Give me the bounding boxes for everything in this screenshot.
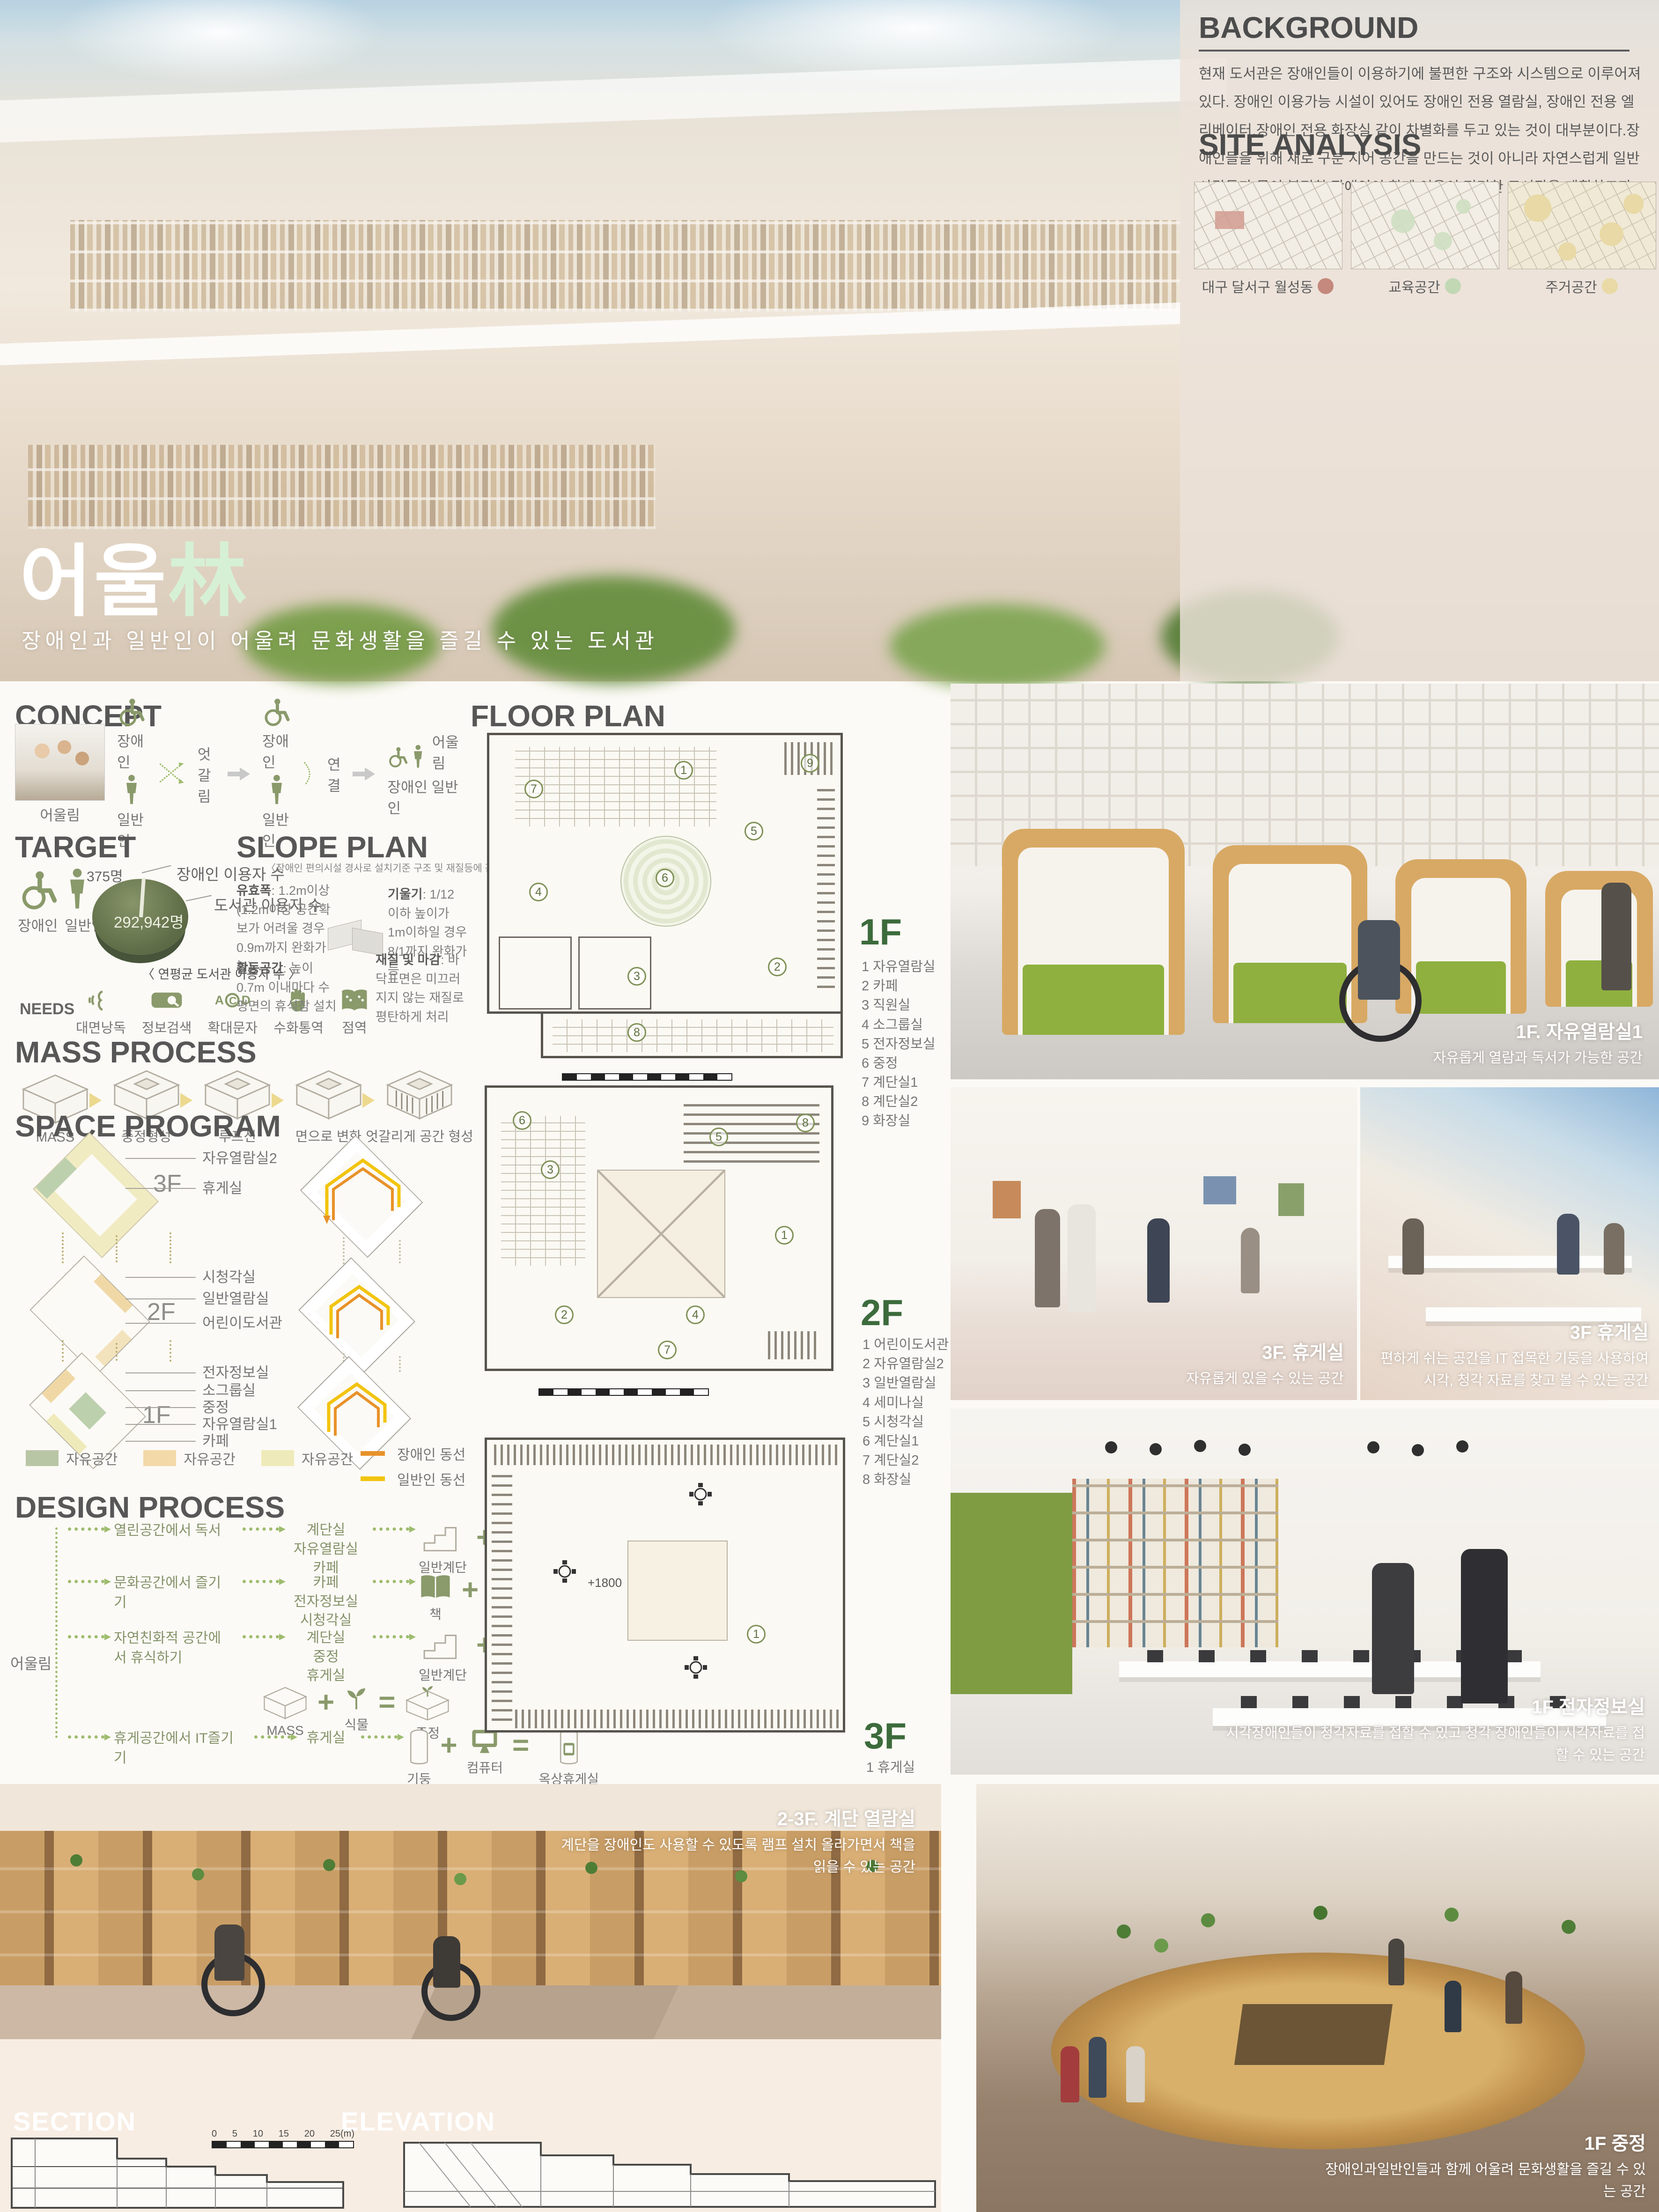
path-legend-item: 장애인 동선 bbox=[361, 1443, 465, 1464]
wheelchair-icon bbox=[262, 698, 291, 727]
room-number-badge: 1 bbox=[674, 761, 693, 780]
person-silhouette bbox=[1372, 1563, 1414, 1694]
legend-2f: 1 어린이도서관2 자유열람실23 일반열람실4 세미나실5 시청각실6 계단실… bbox=[863, 1335, 949, 1489]
legend-item: 9 화장실 bbox=[862, 1112, 936, 1131]
artwork bbox=[1203, 1176, 1236, 1204]
render-caption: 2-3F. 계단 열람실 계단을 장애인도 사용할 수 있도록 램프 설치 올라… bbox=[560, 1804, 915, 1878]
site-map-caption: 교육공간 bbox=[1351, 276, 1498, 296]
merge-label: 어울림 bbox=[432, 730, 460, 773]
legend-1f: 1 자유열람실2 카페3 직원실4 소그룹실5 전자정보실6 중정7 계단실18… bbox=[862, 958, 936, 1131]
site-map-caption: 대구 달서구 월성동 bbox=[1194, 276, 1342, 296]
person-silhouette bbox=[1089, 2037, 1106, 2098]
person-icon bbox=[269, 774, 285, 805]
wheelchair-icon bbox=[19, 870, 59, 910]
person-silhouette bbox=[1035, 1209, 1060, 1307]
legend-swatch bbox=[261, 1450, 294, 1466]
equation-b: 식물 bbox=[344, 1686, 369, 1733]
plus-icon: + bbox=[441, 1733, 457, 1759]
wheelchair-icon bbox=[387, 742, 409, 773]
plan-scale-bar bbox=[538, 1388, 709, 1396]
room-number-badge: 1 bbox=[747, 1625, 766, 1644]
courtyard-cube-icon bbox=[405, 1686, 450, 1720]
floor-tag-2f: 2F bbox=[147, 1298, 176, 1326]
ramp-drawing bbox=[328, 906, 384, 955]
room-number-badge: 5 bbox=[709, 1128, 728, 1146]
process-row-4: 휴게공간에서 IT즐기기 휴게실 기둥 + 컴퓨터 = 옥상휴게실 bbox=[68, 1729, 599, 1788]
legend-item: 1 휴게실 bbox=[866, 1758, 915, 1777]
merge-sub-label: 장애인 일반인 bbox=[387, 775, 460, 818]
plan-badges: 123456789 bbox=[487, 733, 843, 1061]
render-caption: 3F 휴게실 편하게 쉬는 공간을 IT 접목한 기둥을 사용하여 시각, 청각… bbox=[1368, 1317, 1649, 1392]
site-analysis-heading: SITE ANALYSIS bbox=[1199, 127, 1630, 167]
legend-item: 7 계단실2 bbox=[863, 1451, 949, 1470]
path-legend: 장애인 동선 일반인 동선 bbox=[361, 1443, 465, 1489]
room-label: 시청각실 bbox=[202, 1265, 256, 1286]
artwork bbox=[993, 1181, 1021, 1218]
info-panel: BACKGROUND 현재 도서관은 장애인들이 이용하기에 불편한 구조와 시… bbox=[1180, 0, 1659, 681]
spaces-list: 카페 전자정보실 시청각실 bbox=[288, 1573, 363, 1630]
dotted-arrow-icon bbox=[373, 1635, 409, 1638]
render-caption: 3F. 휴게실 자유롭게 있을 수 있는 공간 bbox=[1082, 1337, 1344, 1390]
person-silhouette bbox=[433, 1936, 460, 1988]
floor-plan-1f: 123456789 bbox=[487, 733, 843, 1061]
activity-label: 열린공간에서 독서 bbox=[114, 1521, 233, 1541]
title-hanja: 林 bbox=[168, 538, 249, 626]
bookshelf-band-lower bbox=[28, 445, 656, 529]
activity-label: 문화공간에서 즐기기 bbox=[114, 1573, 233, 1613]
cross-label: 엇갈림 bbox=[198, 743, 215, 806]
legend-dot-icon bbox=[1602, 278, 1618, 294]
site-map-cell: 교육공간 bbox=[1351, 182, 1498, 296]
site-map-thumbnail bbox=[1508, 182, 1656, 269]
axon-3f bbox=[34, 1134, 158, 1257]
leader-line bbox=[142, 865, 171, 873]
pie-small-value: 375명 bbox=[87, 865, 123, 885]
plan-badges: 12345678 bbox=[485, 1085, 833, 1376]
needs-item: 정보검색 bbox=[142, 987, 192, 1037]
legend-item: 6 중정 bbox=[862, 1054, 936, 1073]
render-digital-room: 1F 전자정보실 시각장애인들이 청각자료를 접할 수 있고 청각 장애인들이 … bbox=[951, 1408, 1659, 1775]
plant-icon bbox=[344, 1686, 369, 1712]
legend-item: 8 화장실 bbox=[863, 1470, 949, 1489]
person-silhouette bbox=[1061, 2046, 1079, 2102]
connect-arc-icon bbox=[303, 741, 315, 807]
face-reading-icon bbox=[88, 987, 114, 1013]
person-silhouette bbox=[1505, 1971, 1522, 2024]
hero-render: BACKGROUND 현재 도서관은 장애인들이 이용하기에 불편한 구조와 시… bbox=[0, 0, 1659, 681]
site-map-cell: 주거공간 bbox=[1508, 182, 1655, 296]
legend-3f: 1 휴게실 bbox=[866, 1758, 915, 1777]
floor-plan-3f: +1800 1 bbox=[485, 1438, 845, 1737]
room-number-badge: 1 bbox=[775, 1226, 794, 1245]
room-number-badge: 7 bbox=[658, 1341, 677, 1359]
legend-item: 2 자유열람실2 bbox=[863, 1355, 949, 1374]
dotted-arrow-icon bbox=[361, 1735, 398, 1739]
person-icon bbox=[124, 774, 140, 805]
site-map-thumbnail bbox=[1194, 182, 1342, 269]
room-number-badge: 6 bbox=[656, 869, 674, 887]
path-arrow-icon bbox=[361, 1451, 385, 1456]
person-silhouette bbox=[1147, 1218, 1170, 1303]
process-spine bbox=[55, 1527, 58, 1738]
floor-tag-1f: 1F bbox=[142, 1401, 171, 1429]
poster: BACKGROUND 현재 도서관은 장애인들이 이용하기에 불편한 구조와 시… bbox=[0, 0, 1659, 2212]
equation-result: 옥상휴게실 bbox=[538, 1729, 599, 1788]
equation-a: 일반계단 bbox=[419, 1521, 467, 1576]
braille-book-icon bbox=[339, 987, 369, 1013]
dotted-arrow-icon bbox=[68, 1635, 104, 1638]
person-silhouette bbox=[1557, 1214, 1579, 1275]
book-icon bbox=[419, 1573, 452, 1601]
dotted-arrow-icon bbox=[68, 1527, 104, 1531]
room-label: 카페 bbox=[202, 1429, 229, 1450]
target-heading: TARGET bbox=[15, 830, 136, 864]
person-silhouette bbox=[1461, 1549, 1508, 1703]
slope-plan-heading: SLOPE PLAN bbox=[236, 830, 428, 864]
dotted-arrow-icon bbox=[373, 1527, 409, 1531]
activity-label: 자연친화적 공간에서 휴식하기 bbox=[114, 1629, 233, 1668]
concept-photo-group: 어울림 bbox=[15, 724, 105, 825]
circulation-path-3f bbox=[304, 1142, 421, 1249]
axon-2f bbox=[31, 1257, 149, 1375]
crossing-arrows-icon bbox=[158, 744, 185, 804]
person-silhouette bbox=[214, 1924, 244, 1981]
needs-item: 대면낭독 bbox=[76, 987, 126, 1037]
dotted-arrow-icon bbox=[68, 1735, 104, 1739]
site-map-cell: 대구 달서구 월성동 bbox=[1194, 182, 1342, 296]
disabled-label: 장애인 bbox=[262, 730, 291, 772]
bookshelf-band-upper bbox=[70, 220, 1180, 311]
dotted-arrow-icon bbox=[243, 1527, 279, 1531]
space-legend-item: 자유공간 bbox=[26, 1448, 118, 1468]
legend-item: 6 계단실1 bbox=[863, 1432, 949, 1451]
needs-item: 점역 bbox=[339, 987, 369, 1037]
path-legend-item: 일반인 동선 bbox=[361, 1468, 465, 1489]
room-label: 자유열람실2 bbox=[202, 1146, 277, 1167]
legend-item: 1 어린이도서관 bbox=[863, 1335, 949, 1355]
equals-icon: = bbox=[378, 1689, 395, 1716]
room-label: 일반열람실 bbox=[202, 1287, 269, 1308]
courtyard-plants bbox=[1117, 1924, 1131, 1939]
legend-item: 3 일반열람실 bbox=[863, 1374, 949, 1393]
wood-booth bbox=[1002, 829, 1185, 1035]
legend-item: 2 카페 bbox=[862, 977, 936, 996]
concept-connect-group: 장애인 일반인 bbox=[262, 698, 291, 850]
equation-a: 일반계단 bbox=[419, 1629, 467, 1684]
legend-item: 1 자유열람실 bbox=[862, 958, 936, 977]
dotted-arrow-icon bbox=[243, 1635, 279, 1638]
mass-cube-icon bbox=[384, 1069, 455, 1121]
elevation-drawing bbox=[400, 2139, 939, 2209]
plus-icon: + bbox=[317, 1689, 334, 1716]
space-legend: 자유공간 자유공간 자유공간 bbox=[26, 1448, 353, 1468]
legend-dot-icon bbox=[1318, 278, 1334, 294]
room-number-badge: 5 bbox=[745, 822, 763, 841]
room-number-badge: 2 bbox=[555, 1305, 574, 1324]
needs-label: NEEDS bbox=[20, 1000, 74, 1018]
space-legend-item: 자유공간 bbox=[261, 1448, 353, 1468]
circulation-path-2f bbox=[303, 1264, 415, 1367]
person-icon bbox=[67, 868, 87, 910]
floor-label-1f: 1F bbox=[859, 911, 902, 953]
title-korean: 어울 bbox=[20, 538, 168, 626]
section-label: SECTION bbox=[13, 2106, 136, 2137]
room-number-badge: 4 bbox=[686, 1305, 705, 1324]
balcony-slab bbox=[0, 302, 1180, 365]
dotted-arrow-icon bbox=[68, 1580, 104, 1583]
activity-label: 휴게공간에서 IT즐기기 bbox=[114, 1729, 245, 1768]
spaces-list: 계단실 자유열람실 카페 bbox=[288, 1521, 363, 1578]
person-silhouette bbox=[1068, 1204, 1096, 1312]
svg-text:C: C bbox=[229, 995, 237, 1007]
floor-tag-3f: 3F bbox=[153, 1170, 182, 1198]
room-number-badge: 8 bbox=[627, 1023, 646, 1042]
project-subtitle: 장애인과 일반인이 어울려 문화생활을 즐길 수 있는 도서관 bbox=[22, 624, 658, 654]
floor-plan-heading: FLOOR PLAN bbox=[471, 699, 665, 733]
concept-users-group: 장애인 일반인 bbox=[117, 698, 146, 850]
mass-cube-icon bbox=[294, 1069, 364, 1121]
legend-swatch bbox=[143, 1450, 176, 1466]
legend-item: 8 계단실2 bbox=[862, 1092, 936, 1112]
space-legend-item: 자유공간 bbox=[143, 1448, 235, 1468]
dotted-arrow-icon bbox=[373, 1580, 409, 1583]
render-caption: 1F 전자정보실 시각장애인들이 청각자료를 접할 수 있고 청각 장애인들이 … bbox=[1214, 1692, 1645, 1766]
space-program-diagram: 3F 자유열람실2 휴게실 2F 시청각실 일반열람실 어린이도서관 1F 전자… bbox=[15, 1133, 465, 1461]
legend-item: 5 시청각실 bbox=[863, 1413, 949, 1432]
people-photo bbox=[15, 724, 105, 801]
room-label: 휴게실 bbox=[202, 1176, 243, 1197]
room-number-badge: 3 bbox=[541, 1160, 560, 1179]
bookshelf-wall bbox=[1072, 1479, 1278, 1647]
arrow-right-icon bbox=[228, 767, 250, 781]
concept-merge-group: 어울림 장애인 일반인 bbox=[387, 730, 460, 818]
person-silhouette bbox=[1402, 1218, 1424, 1275]
render-caption: 1F 중정 장애인과일반인들과 함께 어울려 문화생활을 즐길 수 있는 공간 bbox=[1318, 2128, 1646, 2203]
section-drawing bbox=[7, 2133, 349, 2210]
render-lounge-gallery: 3F. 휴게실 자유롭게 있을 수 있는 공간 bbox=[951, 1087, 1357, 1400]
dotted-arrow-icon bbox=[243, 1580, 279, 1583]
plan-badges: 1 bbox=[485, 1438, 845, 1737]
svg-text:A: A bbox=[215, 993, 224, 1007]
cloud-shape bbox=[56, 0, 384, 84]
equation-a: 기둥 bbox=[407, 1729, 431, 1788]
background-heading: BACKGROUND bbox=[1199, 10, 1630, 52]
photo-label: 어울림 bbox=[40, 804, 80, 825]
stairs-icon bbox=[421, 1629, 465, 1662]
site-analysis-maps: 대구 달서구 월성동 교육공간 bbox=[1194, 182, 1655, 296]
plan-scale-bar bbox=[562, 1073, 732, 1081]
render-caption: 1F. 자유열람실1 자유롭게 열람과 독서가 가능한 공간 bbox=[1315, 1017, 1643, 1069]
arrow-right-icon bbox=[353, 767, 375, 781]
concept-diagram: 어울림 장애인 일반인 엇갈림 장애인 일반인 연결 bbox=[15, 725, 460, 823]
room-number-badge: 8 bbox=[796, 1113, 815, 1132]
person-silhouette bbox=[1241, 1228, 1260, 1293]
legend-item: 3 직원실 bbox=[862, 996, 936, 1015]
room-number-badge: 4 bbox=[529, 883, 548, 901]
render-reading-room: 1F. 자유열람실1 자유롭게 열람과 독서가 가능한 공간 bbox=[951, 684, 1659, 1079]
disabled-label: 장애인 bbox=[117, 730, 146, 772]
person-silhouette bbox=[1601, 883, 1631, 990]
legend-item: 7 계단실1 bbox=[862, 1073, 936, 1092]
room-number-badge: 9 bbox=[801, 754, 819, 773]
plus-icon: + bbox=[462, 1577, 479, 1603]
stage-box bbox=[1234, 2004, 1393, 2065]
person-silhouette bbox=[1388, 1939, 1404, 1985]
legend-item: 5 전자정보실 bbox=[862, 1035, 936, 1054]
table bbox=[1388, 1256, 1632, 1268]
leader-line bbox=[186, 895, 212, 901]
legend-swatch bbox=[26, 1450, 59, 1466]
search-device-icon bbox=[150, 987, 184, 1013]
render-lounge-tables: 3F 휴게실 편하게 쉬는 공간을 IT 접목한 기둥을 사용하여 시각, 청각… bbox=[1360, 1087, 1659, 1400]
person-icon bbox=[413, 741, 424, 773]
path-arrow-icon bbox=[361, 1476, 385, 1481]
floor-label-3f: 3F bbox=[864, 1715, 907, 1757]
legend-dot-icon bbox=[1445, 278, 1461, 294]
room-number-badge: 3 bbox=[627, 967, 646, 986]
render-stair-reading: 2-3F. 계단 열람실 계단을 장애인도 사용할 수 있도록 램프 설치 올라… bbox=[0, 1784, 941, 2212]
ceiling-spotlights bbox=[1105, 1441, 1117, 1453]
room-number-badge: 7 bbox=[524, 780, 543, 798]
room-number-badge: 6 bbox=[513, 1111, 531, 1130]
wheelchair-icon bbox=[117, 698, 146, 727]
floor-plan-2f: 12345678 bbox=[485, 1085, 833, 1376]
pie-big-value: 292,942명 bbox=[114, 910, 184, 932]
greenery bbox=[890, 604, 1105, 688]
person-silhouette bbox=[1445, 1981, 1461, 2032]
room-label: 어린이도서관 bbox=[202, 1311, 282, 1332]
green-wall bbox=[951, 1493, 1072, 1694]
slope-note-material: 재질 및 마감: 바닥표면은 미끄러지지 않는 재질로 평탄하게 처리 bbox=[376, 951, 467, 1026]
person-silhouette bbox=[1126, 2046, 1145, 2102]
dotted-arrow-icon bbox=[254, 1735, 291, 1739]
spaces-list: 계단실 중정 휴게실 bbox=[288, 1629, 363, 1686]
column-icon bbox=[408, 1729, 430, 1766]
floor-label-2f: 2F bbox=[861, 1291, 903, 1334]
elevation-label: ELEVATION bbox=[341, 2106, 495, 2137]
person-silhouette bbox=[1604, 1223, 1624, 1275]
artwork bbox=[1278, 1183, 1304, 1216]
lounge-patch bbox=[36, 1158, 77, 1199]
room-number-badge: 2 bbox=[768, 958, 787, 976]
spaces-list: 휴게실 bbox=[300, 1729, 352, 1748]
process-root-label: 어울림 bbox=[10, 1652, 52, 1674]
equation-a: 책 bbox=[419, 1573, 452, 1623]
slope-note-activity: 활동공간: 높이 0.7m 이내마다 수평면의 휴식참 설치 bbox=[236, 959, 337, 1016]
mass-process-heading: MASS PROCESS bbox=[15, 1035, 257, 1069]
stairs-icon bbox=[421, 1521, 465, 1555]
connect-label: 연결 bbox=[327, 753, 341, 795]
shelf-plants bbox=[70, 1854, 82, 1866]
legend-item: 4 세미나실 bbox=[863, 1394, 949, 1413]
wood-booth bbox=[1545, 871, 1653, 1007]
design-process-heading: DESIGN PROCESS bbox=[15, 1490, 285, 1525]
site-map-caption: 주거공간 bbox=[1508, 276, 1655, 296]
person-silhouette bbox=[1358, 920, 1400, 1000]
project-title: 어울林 bbox=[20, 542, 249, 621]
legend-item: 4 소그룹실 bbox=[862, 1016, 936, 1035]
site-map-thumbnail bbox=[1351, 182, 1499, 269]
disabled-label: 장애인 bbox=[18, 914, 58, 935]
mass-cube-icon bbox=[262, 1686, 308, 1720]
render-courtyard: 1F 중정 장애인과일반인들과 함께 어울려 문화생활을 즐길 수 있는 공간 bbox=[976, 1784, 1659, 2212]
